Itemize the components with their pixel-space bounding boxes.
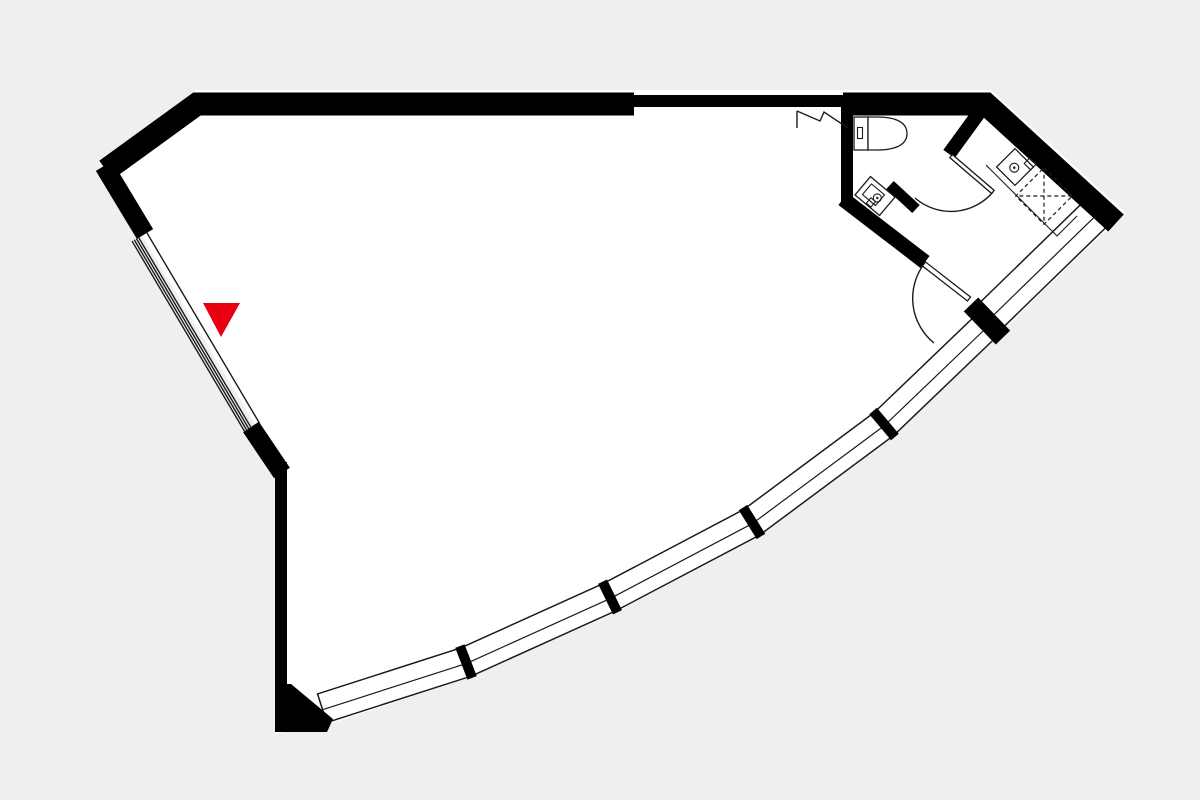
- toilet-icon: [854, 117, 907, 150]
- unit-floor: [98, 90, 1125, 734]
- wall-top-thin: [630, 95, 846, 107]
- wall-west: [275, 462, 287, 694]
- floor-plan-canvas: [0, 0, 1200, 800]
- wall-wc-west: [841, 99, 853, 203]
- floor-plan-svg: [0, 0, 1200, 800]
